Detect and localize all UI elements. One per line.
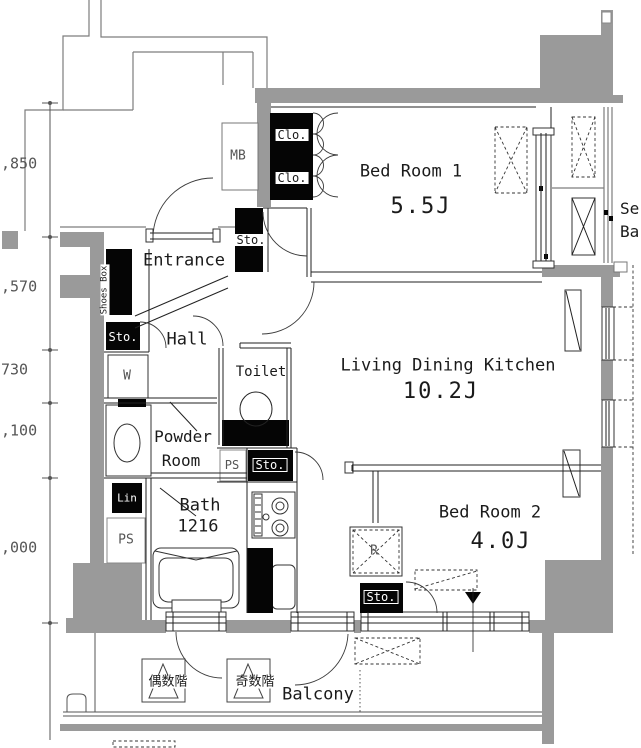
floor-marker-odd: 奇数階 [234,676,275,689]
ldk-balcony-door [291,612,354,631]
floor-plan: Entrance Hall Toilet Powder Room Bath 12… [0,0,641,748]
room-label-bath: Bath [180,498,221,515]
room-label-bed1: Bed Room 1 [360,164,462,181]
bathtub-inner [159,558,233,602]
room-label-entrance: Entrance [143,253,225,270]
bath-balcony-window [166,612,226,631]
dimension-label-2: ,570 [1,280,37,295]
floor-marker-even: 偶数階 [147,676,188,689]
dimension-label-4: ,100 [1,424,37,439]
bed1-window [536,133,551,263]
closet-fold-arcs [317,113,338,197]
room-label-powder-2: Room [162,453,201,469]
ps-west-label: PS [118,534,134,547]
wall-notch [602,12,611,23]
room-label-bed2: Bed Room 2 [439,505,541,522]
linen-label: Lin [117,493,137,504]
closet-block [270,113,313,200]
bath-window-bay [172,600,221,613]
bed2-area-label: 4.0J [471,531,532,553]
kitchen-counter [247,548,273,613]
entrance-door-arc [153,178,213,238]
closet-label-1: Clo. [276,129,309,141]
shoes-box-label: Shoes Box [101,265,110,316]
ldk-door-arc [262,282,314,334]
shoes-box [106,249,132,315]
bed1-window-cap-top [533,128,554,135]
bed2-shelf-box [415,570,477,590]
room-label-powder-1: Powder [154,429,212,445]
service-duct-box [572,117,595,177]
dimension-label-1: ,850 [1,157,37,172]
bed2-balcony-window [361,612,529,631]
closet-label-2: Clo. [276,172,309,184]
storage-label-hall: Sto. [109,331,138,343]
room-label-balcony: Balcony [282,687,354,704]
entrance-door-cap-right [213,229,220,242]
service-balcony-label-1: Se [620,201,639,217]
storage-label-kitchen: Sto. [253,458,288,472]
storage-label-bed1: Sto. [235,234,268,246]
toilet-cistern [222,420,289,446]
dimension-label-3: 730 [1,363,28,378]
sto-hall-door-arc [140,322,166,348]
bed1-window-cap-bottom [533,261,554,268]
corridor-outline [25,0,612,263]
meter-box-label: MB [230,150,246,163]
room-label-hall: Hall [167,332,208,349]
service-balcony-label-2: Ba [620,224,639,240]
room-label-ldk: Living Dining Kitchen [341,358,556,375]
stove-grill [254,494,262,536]
bed1-area-label: 5.5J [391,196,452,218]
balcony-door-arc-2 [295,634,348,685]
ldk-east-window-2 [602,400,614,447]
balcony-step [67,694,86,712]
railing-end-cap [614,262,627,272]
room-label-toilet: Toilet [236,365,287,379]
ps-toilet-label: PS [225,459,239,471]
sto-kitchen-door-arc [295,452,323,480]
kitchen-sink [272,565,295,609]
entrance-door-cap-left [146,229,153,242]
dimension-line [42,102,58,741]
bath-size-label: 1216 [178,519,219,536]
vanity-sink [114,424,140,462]
fridge-label: R [370,545,378,558]
storage-label-bed2: Sto. [364,590,399,604]
ldk-area-label: 10.2J [403,381,479,403]
dimension-label-5: ,000 [1,541,37,556]
ldk-east-window-1 [602,307,614,360]
bed1-door-arc [263,212,307,256]
washer-label: W [123,370,131,383]
